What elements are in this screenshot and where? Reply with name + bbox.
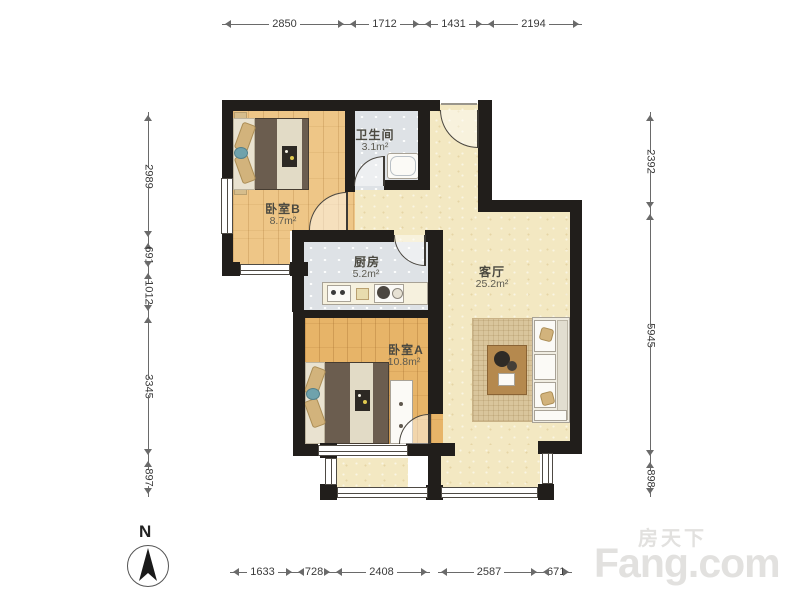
dimension-label: 898	[645, 469, 656, 487]
watermark-en-text: Fang.com	[594, 540, 780, 587]
entry-door-leaf	[477, 110, 479, 148]
sink-knob	[331, 290, 336, 295]
sofa-back	[557, 320, 568, 420]
window	[337, 487, 428, 498]
stove-burner	[392, 288, 403, 299]
dimension-label: 2194	[521, 19, 545, 30]
stove-burner	[377, 286, 390, 299]
window	[221, 178, 233, 234]
bathroom-door-leaf	[383, 156, 385, 186]
wardrobe-handle	[399, 402, 403, 406]
room-area-bathroom: 3.1m²	[362, 141, 389, 153]
table-decor	[507, 361, 517, 371]
tray-dot	[358, 394, 361, 397]
bedroom-b-bay-floor	[233, 231, 290, 265]
wall	[418, 111, 430, 190]
dimension-right: 2392	[643, 112, 657, 211]
dimension-bottom: 1633	[230, 565, 295, 579]
north-arrow-icon	[127, 545, 169, 587]
bedroom-b-door-leaf	[346, 192, 348, 230]
wall	[478, 200, 582, 212]
dimension-left: 897	[141, 458, 155, 497]
dimension-label: 2587	[477, 567, 501, 578]
bed-cushion	[306, 388, 320, 400]
dimension-left: 3345	[141, 314, 155, 458]
wall	[320, 484, 337, 500]
dimension-right: 898	[643, 459, 657, 497]
dimension-bottom: 671	[540, 565, 568, 579]
balcony-floor	[337, 458, 408, 487]
wall	[292, 230, 394, 242]
room-area-living: 25.2m²	[476, 278, 509, 290]
tray-dot	[285, 150, 288, 153]
dimension-bottom: 2408	[333, 565, 430, 579]
living-room-floor-lower	[441, 445, 540, 488]
dimension-top: 1712	[347, 17, 422, 31]
bed-cushion	[234, 147, 248, 159]
dimension-bottom: 728	[295, 565, 333, 579]
entry-threshold	[441, 103, 477, 105]
dimension-label: 897	[143, 468, 154, 486]
wall	[292, 242, 304, 312]
wall	[293, 444, 318, 456]
wall	[345, 111, 355, 180]
sink-knob	[340, 290, 345, 295]
dimension-label: 1431	[441, 19, 465, 30]
wall	[428, 230, 443, 414]
wall	[293, 310, 305, 450]
room-area-bedroom-b: 8.7m²	[270, 215, 297, 227]
kitchen-door-leaf	[424, 235, 426, 266]
wall	[293, 310, 443, 318]
dimension-label: 2408	[369, 567, 393, 578]
wall	[406, 443, 455, 456]
dimension-label: 1633	[250, 567, 274, 578]
sofa-cushion	[534, 354, 556, 380]
dimension-top: 2850	[222, 17, 347, 31]
watermark-logo: 房天下 Fang.com	[594, 520, 794, 592]
dimension-left: 691	[141, 240, 155, 270]
dimension-right: 5945	[643, 211, 657, 459]
window	[325, 458, 337, 485]
floor-plan-image: 卧室B 8.7m² 卫生间 3.1m² 厨房 5.2m² 卧室A 10.8m² …	[0, 0, 800, 600]
dimension-top: 1431	[422, 17, 485, 31]
window	[318, 445, 408, 456]
dimension-label: 728	[305, 567, 323, 578]
wall	[222, 100, 440, 111]
north-label: N	[139, 522, 151, 542]
window	[240, 264, 290, 275]
bathtub-inner	[390, 156, 416, 176]
room-area-bedroom-a: 10.8m²	[388, 356, 421, 368]
dimension-left: 2989	[141, 112, 155, 240]
window	[441, 487, 538, 498]
bedroom-a-door-leaf	[428, 414, 431, 444]
counter-item	[356, 288, 369, 300]
dimension-top: 2194	[485, 17, 582, 31]
window	[542, 453, 553, 484]
wall	[538, 484, 554, 500]
wall	[478, 100, 492, 212]
dimension-label: 2850	[272, 19, 296, 30]
dimension-bottom: 2587	[438, 565, 540, 579]
wall	[222, 262, 240, 276]
tray-dot	[363, 400, 367, 404]
wall	[570, 212, 582, 442]
sofa-cushion	[534, 410, 567, 421]
dimension-left: 1012	[141, 270, 155, 314]
room-area-kitchen: 5.2m²	[353, 268, 380, 280]
tray-dot	[290, 156, 294, 160]
dimension-label: 1712	[372, 19, 396, 30]
table-tray	[498, 373, 515, 386]
